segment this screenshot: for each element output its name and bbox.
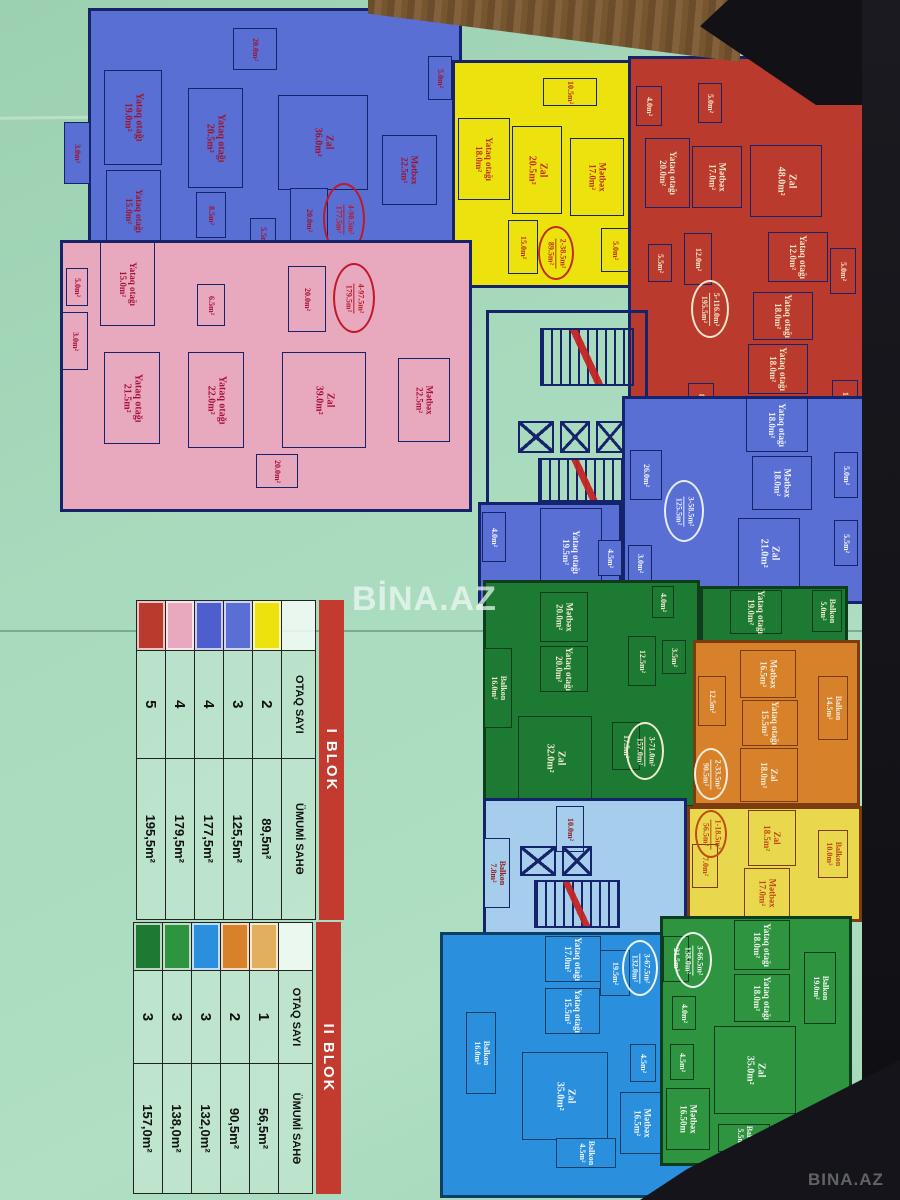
area-label: 20.0m² bbox=[288, 266, 326, 332]
legend-total-area: 89,5m² bbox=[252, 759, 281, 920]
room-label: Yataq otağı22.0m² bbox=[188, 352, 244, 448]
room-label: Balkon4.5m² bbox=[556, 1138, 616, 1168]
legend-grid: OTAQ SAYIÜMUMİ SAHƏ156,5m²290,5m²3132,0m… bbox=[133, 922, 313, 1194]
staircase bbox=[540, 328, 634, 386]
room-label: Mətbəx17.0m² bbox=[692, 146, 742, 208]
room-label: Yataq otağı18.0m² bbox=[734, 974, 790, 1022]
elevator-shaft bbox=[518, 421, 554, 453]
room-label: Zal35.0m² bbox=[714, 1026, 796, 1114]
room-label: Mətbəx22.5m² bbox=[382, 135, 437, 205]
legend-title: II BLOK bbox=[316, 922, 341, 1194]
room-label: Mətbəx16.5m² bbox=[740, 650, 796, 698]
room-label: Balkon10.0m² bbox=[818, 830, 848, 878]
legend-col-area: ÜMUMİ SAHƏ bbox=[281, 759, 315, 920]
legend-room-count: 3 bbox=[133, 971, 162, 1064]
room-label: Yataq otağı20.5m² bbox=[188, 88, 243, 188]
legend-room-count: 1 bbox=[249, 971, 278, 1064]
elevator-shaft bbox=[560, 421, 590, 453]
room-label: Zal18.5m² bbox=[748, 810, 796, 866]
area-label: 20.0m² bbox=[256, 454, 298, 488]
area-label: 5.0m² bbox=[698, 83, 722, 123]
legend-table-blok2: II BLOKOTAQ SAYIÜMUMİ SAHƏ156,5m²290,5m²… bbox=[133, 922, 341, 1194]
legend-total-area: 157,0m² bbox=[133, 1064, 162, 1194]
area-label: 12.0m² bbox=[684, 233, 712, 285]
staircase bbox=[534, 880, 620, 928]
area-label: 12.5m² bbox=[698, 676, 726, 726]
room-label: Balkon16.0m² bbox=[484, 648, 512, 728]
legend-color-swatch bbox=[223, 601, 252, 651]
legend-room-count: 3 bbox=[223, 651, 252, 759]
room-label: Yataq otağı20.0m² bbox=[540, 646, 588, 692]
legend-room-count: 5 bbox=[136, 651, 165, 759]
legend-color-swatch bbox=[133, 923, 162, 971]
legend-color-swatch bbox=[249, 923, 278, 971]
elevator-shaft bbox=[520, 846, 556, 876]
elevator-shaft bbox=[596, 421, 624, 453]
area-label: 5.5m² bbox=[648, 244, 672, 282]
room-label: Yataq otağı18.0m² bbox=[753, 292, 813, 340]
legend-title: I BLOK bbox=[319, 600, 344, 920]
area-label: 8.5m² bbox=[196, 192, 226, 238]
area-label: 3.5m² bbox=[662, 640, 686, 674]
apartment-summary-oval: 5-116.0m²195.5m² bbox=[691, 280, 729, 338]
room-label: Mətbəx18.0m² bbox=[752, 456, 812, 510]
legend-table-blok1: I BLOKOTAQ SAYIÜMUMİ SAHƏ289,5m²3125,5m²… bbox=[136, 600, 344, 920]
room-label: Yataq otağı15.5m² bbox=[742, 700, 798, 746]
area-label: 5.0m² bbox=[428, 56, 452, 100]
room-label: Balkon5.0m² bbox=[812, 590, 842, 632]
area-label: 4.0m² bbox=[636, 86, 662, 126]
apartment-summary-oval: 3-67.5m²132.0m² bbox=[622, 940, 658, 996]
room-label: Zal39.0m² bbox=[282, 352, 366, 448]
area-label: 15.0m² bbox=[508, 220, 538, 274]
area-label: 4.0m² bbox=[482, 512, 506, 562]
area-label: 3.0m² bbox=[628, 545, 652, 581]
room-label: Zal21.0m² bbox=[738, 518, 800, 588]
apartment-summary-oval: 3-66.5m²138.0m² bbox=[674, 932, 712, 988]
room-label: Zal20.5m² bbox=[512, 126, 562, 214]
legend-room-count: 4 bbox=[194, 651, 223, 759]
room-label: Yataq otağı20.0m² bbox=[645, 138, 690, 208]
area-label: 10.5m² bbox=[543, 78, 597, 106]
area-label: 5.0m² bbox=[66, 268, 88, 306]
area-label: 4.0m² bbox=[652, 586, 674, 618]
legend-col-rooms: OTAQ SAYI bbox=[278, 971, 312, 1064]
room-label: Mətbəx20.0m² bbox=[540, 592, 588, 642]
legend-total-area: 138,0m² bbox=[162, 1064, 191, 1194]
room-label: Yataq otağı15.5m² bbox=[545, 988, 600, 1034]
room-label: Yataq otağı15.0m² bbox=[100, 242, 155, 326]
legend-color-swatch bbox=[136, 601, 165, 651]
room-label: Balkon16.0m² bbox=[466, 1012, 496, 1094]
legend-col-area: ÜMUMİ SAHƏ bbox=[278, 1064, 312, 1194]
area-label: 26.0m² bbox=[630, 450, 662, 500]
bina-az-corner-watermark: BINA.AZ bbox=[808, 1170, 884, 1190]
legend-color-swatch bbox=[162, 923, 191, 971]
apartment-summary-oval: 3-71.0m²157.0m² bbox=[626, 722, 664, 780]
legend-color-swatch bbox=[165, 601, 194, 651]
legend-total-area: 195,5m² bbox=[136, 759, 165, 920]
apartment-summary-oval: 2-33.5m²90.5m² bbox=[694, 748, 728, 800]
room-label: Mətbəx16.5m² bbox=[620, 1092, 664, 1154]
room-label: Mətbəx16.50m bbox=[666, 1088, 710, 1150]
legend-total-area: 90,5m² bbox=[220, 1064, 249, 1194]
legend-col-rooms: OTAQ SAYI bbox=[281, 651, 315, 759]
staircase bbox=[538, 458, 632, 502]
room-label: Yataq otağı19.0m² bbox=[104, 70, 162, 165]
legend-room-count: 3 bbox=[162, 971, 191, 1064]
room-label: Balkon19.0m² bbox=[804, 952, 836, 1024]
room-label: Zal48.0m² bbox=[750, 145, 822, 217]
room-label: Yataq otağı18.0m² bbox=[748, 344, 808, 394]
room-label: Mətbəx17.0m² bbox=[570, 138, 624, 216]
photo-of-floorplan-sheet: 20.0m²Yataq otağı19.0m²Yataq otağı20.5m²… bbox=[0, 0, 900, 1200]
room-label: Yataq otağı12.0m² bbox=[768, 232, 828, 282]
legend-color-swatch bbox=[252, 601, 281, 651]
area-label: 5.0m² bbox=[601, 228, 629, 272]
area-label: 4.5m² bbox=[598, 540, 622, 576]
legend-color-swatch bbox=[220, 923, 249, 971]
area-label: 5.5m² bbox=[834, 520, 858, 566]
legend-total-area: 132,0m² bbox=[191, 1064, 220, 1194]
room-label: Yataq otağı17.0m² bbox=[545, 936, 601, 982]
area-label: 4.5m² bbox=[630, 1044, 656, 1082]
legend-room-count: 2 bbox=[220, 971, 249, 1064]
room-label: Balkon14.5m² bbox=[818, 676, 848, 740]
elevator-shaft bbox=[562, 846, 592, 876]
room-label: Mətbəx17.0m² bbox=[744, 868, 790, 918]
apartment-summary-oval: 2-38.5m²89.5m² bbox=[538, 226, 574, 280]
legend-total-area: 179,5m² bbox=[165, 759, 194, 920]
dark-table-surface-right bbox=[862, 0, 900, 1200]
area-label: 4.0m² bbox=[672, 996, 696, 1030]
bina-az-watermark: BİNA.AZ bbox=[352, 580, 542, 624]
legend-room-count: 3 bbox=[191, 971, 220, 1064]
area-label: 5.0m² bbox=[830, 248, 856, 294]
room-label: Balkon7.8m² bbox=[484, 838, 510, 908]
room-label: Zal32.0m² bbox=[518, 716, 592, 800]
legend-room-count: 2 bbox=[252, 651, 281, 759]
area-label: 3.0m² bbox=[62, 312, 88, 370]
apartment-summary-oval: 1-18.5m²56.5m² bbox=[695, 810, 727, 858]
room-label: Yataq otağı18.0m² bbox=[734, 920, 790, 970]
legend-swatch-header bbox=[278, 923, 312, 971]
room-label: Zal36.0m² bbox=[278, 95, 368, 190]
area-label: 3.0m² bbox=[64, 122, 90, 184]
area-label: 6.5m² bbox=[197, 284, 225, 326]
room-label: Yataq otağı18.0m² bbox=[458, 118, 510, 200]
area-label: 5.0m² bbox=[834, 452, 858, 498]
room-label: Mətbəx22.5m² bbox=[398, 358, 450, 442]
legend-swatch-header bbox=[281, 601, 315, 651]
apartment-summary-oval: 3-58.5m²125.5m² bbox=[664, 480, 704, 542]
room-label: Yataq otağı19.0m² bbox=[730, 590, 782, 634]
legend-total-area: 177,5m² bbox=[194, 759, 223, 920]
area-label: 12.5m² bbox=[628, 636, 656, 686]
legend-room-count: 4 bbox=[165, 651, 194, 759]
apartment-summary-oval: 4-97.5m²179.5m² bbox=[333, 263, 375, 333]
legend-color-swatch bbox=[194, 601, 223, 651]
room-label: Yataq otağı18.0m² bbox=[746, 398, 808, 452]
room-label: Zal18.0m² bbox=[740, 748, 798, 802]
legend-color-swatch bbox=[191, 923, 220, 971]
room-label: Yataq otağı21.5m² bbox=[104, 352, 160, 444]
area-label: 20.0m² bbox=[233, 28, 277, 70]
legend-total-area: 125,5m² bbox=[223, 759, 252, 920]
area-label: 4.5m² bbox=[670, 1044, 694, 1080]
legend-grid: OTAQ SAYIÜMUMİ SAHƏ289,5m²3125,5m²4177,5… bbox=[136, 600, 316, 920]
room-label: Zal35.0m² bbox=[522, 1052, 608, 1140]
legend-total-area: 56,5m² bbox=[249, 1064, 278, 1194]
